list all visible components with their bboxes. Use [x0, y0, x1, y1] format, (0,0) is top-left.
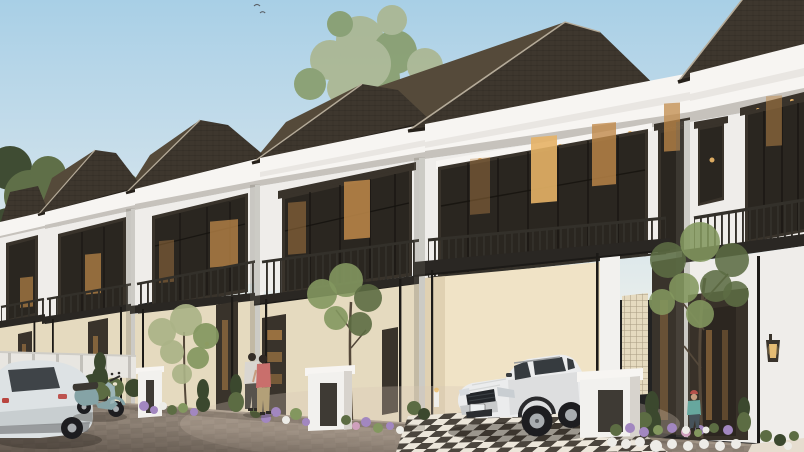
townhouse-row-render	[0, 0, 804, 452]
rendered-photo	[0, 0, 804, 452]
canopy-post	[757, 256, 760, 449]
garden-lamp-bollard	[434, 388, 439, 407]
gate-pillar	[136, 366, 164, 418]
